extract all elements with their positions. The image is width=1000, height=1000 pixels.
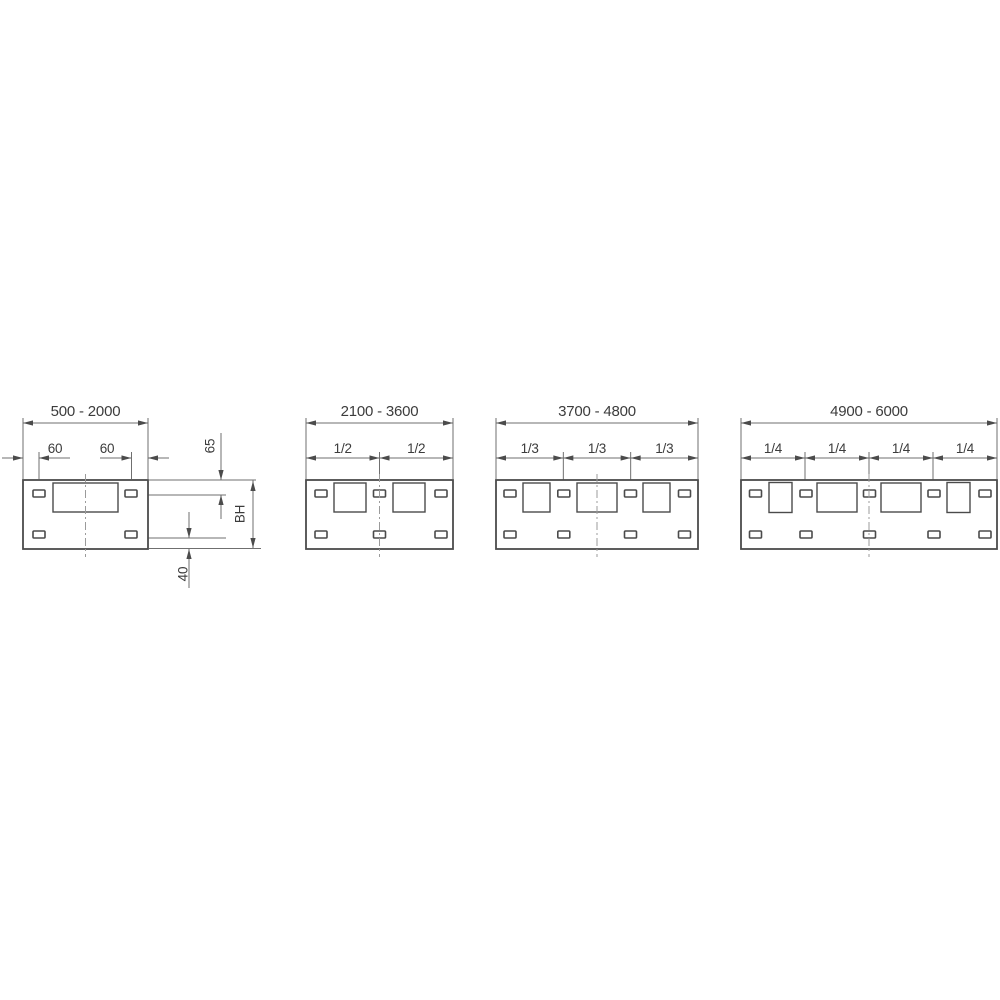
- dimension-arrowhead: [741, 420, 751, 425]
- module-cutout: [393, 483, 425, 512]
- dimension-arrowhead: [250, 481, 255, 491]
- dimension-arrowhead: [23, 420, 33, 425]
- fraction-label: 1/3: [655, 441, 673, 456]
- dimension-arrowhead: [380, 455, 390, 460]
- mounting-slot: [435, 490, 447, 497]
- mounting-slot: [979, 531, 991, 538]
- mounting-slot: [928, 490, 940, 497]
- dimension-arrowhead: [306, 420, 316, 425]
- dimension-arrowhead: [306, 455, 316, 460]
- mounting-slot: [558, 531, 570, 538]
- dimension-arrowhead: [218, 470, 223, 480]
- dimension-value-label: 60: [48, 441, 63, 456]
- mounting-slot: [558, 490, 570, 497]
- mounting-slot: [979, 490, 991, 497]
- mounting-slot: [928, 531, 940, 538]
- module-cutout: [769, 483, 792, 513]
- fraction-label: 1/3: [588, 441, 606, 456]
- panel-3700-4800: 3700 - 48001/31/31/3: [496, 403, 698, 557]
- mounting-slot: [800, 490, 812, 497]
- mounting-slot: [800, 531, 812, 538]
- dimension-value-label: 40: [176, 567, 191, 582]
- technical-diagram-canvas: 500 - 2000606065BH402100 - 36001/21/2370…: [0, 0, 1000, 1000]
- fraction-label: 1/2: [407, 441, 425, 456]
- range-label: 500 - 2000: [51, 403, 121, 420]
- dimension-arrowhead: [805, 455, 815, 460]
- dimension-arrowhead: [138, 420, 148, 425]
- mounting-plate-dimension-drawing: 500 - 2000606065BH402100 - 36001/21/2370…: [0, 0, 1000, 1000]
- dimension-arrowhead: [563, 455, 573, 460]
- dimension-arrowhead: [631, 455, 641, 460]
- dimension-arrowhead: [13, 455, 23, 460]
- module-cutout: [643, 483, 670, 512]
- fraction-label: 1/2: [334, 441, 352, 456]
- dimension-arrowhead: [39, 455, 49, 460]
- mounting-slot: [625, 490, 637, 497]
- mounting-slot: [33, 490, 45, 497]
- dimension-arrowhead: [933, 455, 943, 460]
- dimension-arrowhead: [987, 420, 997, 425]
- panel-4900-6000: 4900 - 60001/41/41/41/4: [741, 403, 997, 557]
- panel-500-2000: 500 - 2000606065BH40: [2, 403, 261, 588]
- fraction-label: 1/4: [764, 441, 783, 456]
- module-cutout: [523, 483, 550, 512]
- mounting-slot: [750, 490, 762, 497]
- range-label: 4900 - 6000: [830, 403, 908, 420]
- dimension-arrowhead: [741, 455, 751, 460]
- dimension-arrowhead: [987, 455, 997, 460]
- mounting-slot: [315, 490, 327, 497]
- mounting-slot: [315, 531, 327, 538]
- dimension-arrowhead: [218, 495, 223, 505]
- fraction-label: 1/4: [892, 441, 911, 456]
- dimension-arrowhead: [869, 455, 879, 460]
- mounting-slot: [504, 531, 516, 538]
- mounting-slot: [679, 490, 691, 497]
- dimension-arrowhead: [688, 455, 698, 460]
- fraction-label: 1/4: [956, 441, 975, 456]
- mounting-slot: [625, 531, 637, 538]
- dimension-arrowhead: [250, 538, 255, 548]
- dimension-arrowhead: [621, 455, 631, 460]
- mounting-slot: [679, 531, 691, 538]
- dimension-value-label: 60: [100, 441, 115, 456]
- mounting-slot: [504, 490, 516, 497]
- fraction-label: 1/3: [521, 441, 539, 456]
- dimension-arrowhead: [443, 455, 453, 460]
- mounting-slot: [435, 531, 447, 538]
- panel-2100-3600: 2100 - 36001/21/2: [306, 403, 453, 557]
- range-label: 3700 - 4800: [558, 403, 636, 420]
- dimension-arrowhead: [186, 549, 191, 559]
- dimension-arrowhead: [122, 455, 132, 460]
- dimension-arrowhead: [370, 455, 380, 460]
- dimension-arrowhead: [553, 455, 563, 460]
- module-cutout: [947, 483, 970, 513]
- mounting-slot: [125, 531, 137, 538]
- dimension-arrowhead: [496, 455, 506, 460]
- dimension-arrowhead: [496, 420, 506, 425]
- dimension-arrowhead: [186, 528, 191, 538]
- range-label: 2100 - 3600: [341, 403, 419, 420]
- mounting-slot: [125, 490, 137, 497]
- dimension-arrowhead: [795, 455, 805, 460]
- dimension-arrowhead: [688, 420, 698, 425]
- dimension-arrowhead: [443, 420, 453, 425]
- dimension-arrowhead: [148, 455, 158, 460]
- fraction-label: 1/4: [828, 441, 847, 456]
- dimension-arrowhead: [859, 455, 869, 460]
- mounting-slot: [33, 531, 45, 538]
- mounting-slot: [750, 531, 762, 538]
- module-cutout: [881, 483, 921, 512]
- dimension-value-label: BH: [233, 505, 248, 523]
- dimension-value-label: 65: [203, 439, 218, 454]
- module-cutout: [817, 483, 857, 512]
- module-cutout: [334, 483, 366, 512]
- dimension-arrowhead: [923, 455, 933, 460]
